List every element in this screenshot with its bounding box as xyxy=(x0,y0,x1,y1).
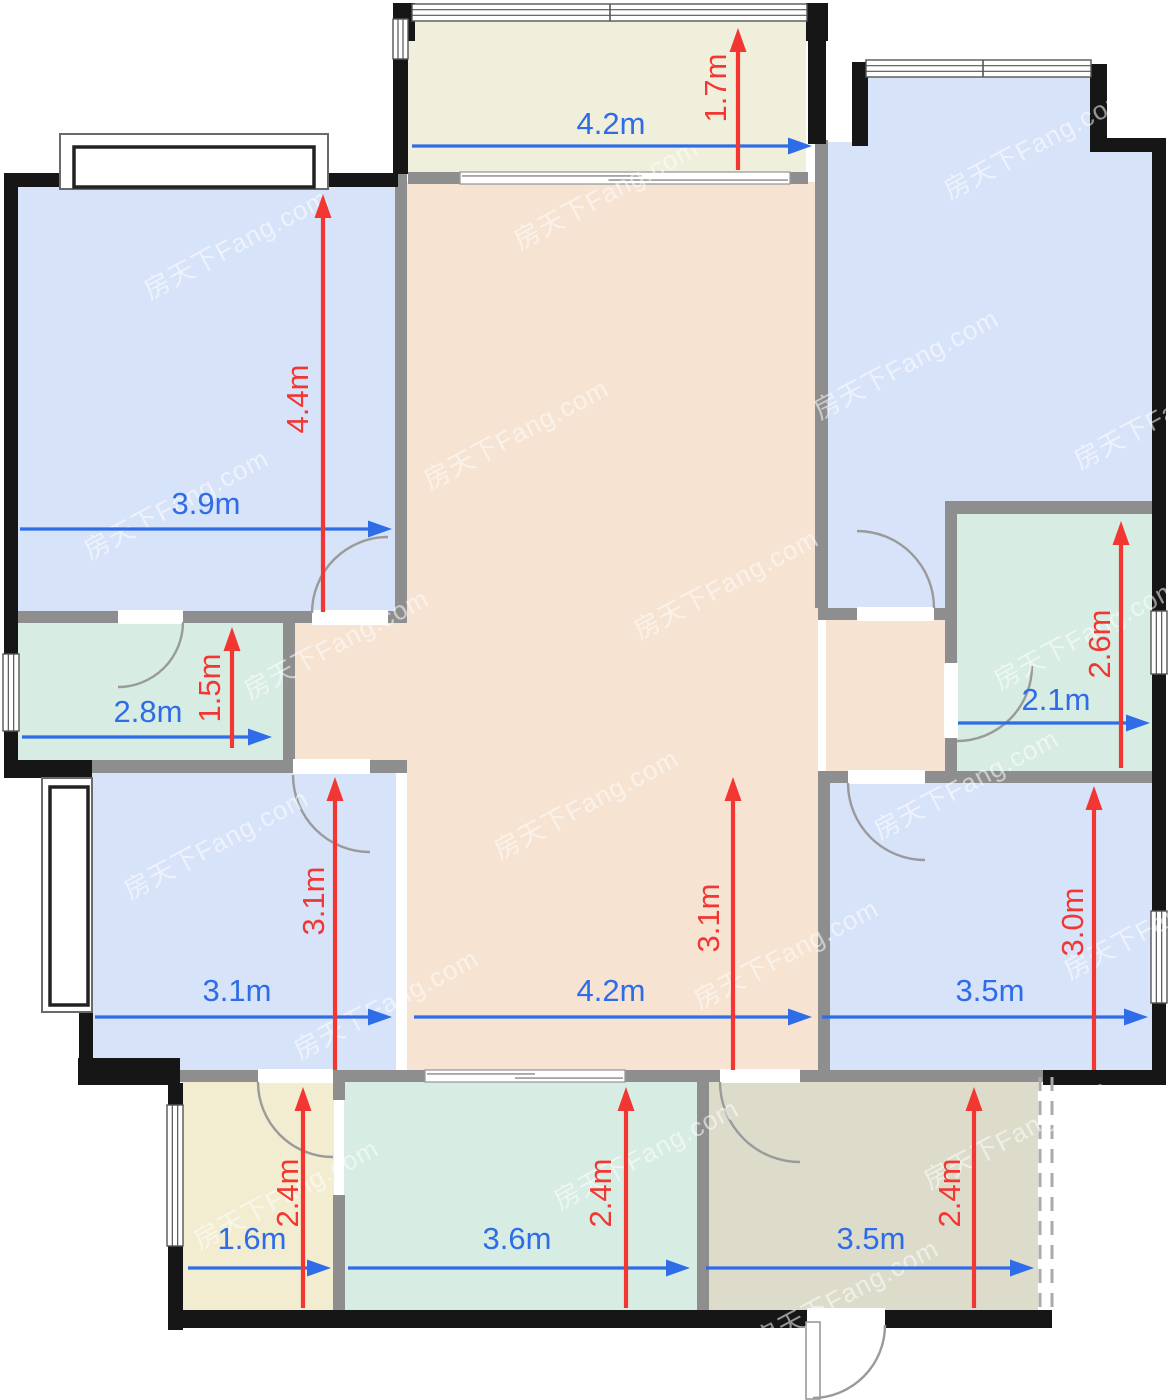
wall-interior xyxy=(408,172,460,184)
door-foyer-opening xyxy=(720,1069,800,1083)
window-balcony-left xyxy=(393,19,408,59)
wall-exterior xyxy=(78,1058,180,1085)
wall-interior xyxy=(790,172,808,184)
wall-interior xyxy=(800,1070,1043,1082)
dim-label: 2.4m xyxy=(583,1159,618,1228)
wall-exterior xyxy=(885,1310,1052,1328)
door-bath-2-opening xyxy=(258,1069,333,1083)
dim-label: 3.5m xyxy=(956,973,1025,1008)
dim-label: 1.7m xyxy=(698,54,733,123)
dim-label: 1.5m xyxy=(192,654,227,723)
door-bathroom-opening xyxy=(944,663,958,738)
door-bedroom-bottom-left-opening xyxy=(293,759,370,774)
dim-label: 3.6m xyxy=(483,1221,552,1256)
window-bathroom-right xyxy=(1151,611,1167,674)
floorplan: 房天下Fang.com房天下Fang.com房天下Fang.com房天下Fang… xyxy=(0,0,1173,1400)
dim-label: 2.8m xyxy=(114,694,183,729)
window-storage-left xyxy=(3,654,19,731)
dim-label: 2.4m xyxy=(932,1159,967,1228)
wall-exterior xyxy=(4,173,18,655)
dim-label: 3.1m xyxy=(203,973,272,1008)
room-kitchen xyxy=(344,1080,698,1312)
door-bedroom-top-right-opening xyxy=(857,607,934,621)
wall-exterior xyxy=(168,1083,183,1106)
wall-exterior xyxy=(808,3,826,144)
window-bath2-left xyxy=(167,1105,183,1246)
wall-interior xyxy=(333,1082,345,1100)
wall-interior xyxy=(625,1070,720,1082)
window-bedroom2-bay xyxy=(50,787,88,1005)
window-master-bay xyxy=(74,147,314,187)
window-bedroom-top-right xyxy=(866,60,1091,77)
door-bedroom-bottom-right-opening xyxy=(848,770,925,784)
dim-label: 4.2m xyxy=(577,106,646,141)
room-living-hall-right-arm xyxy=(826,617,946,773)
door-storage-opening xyxy=(118,610,183,624)
wall-interior xyxy=(395,173,407,623)
dim-label: 3.5m xyxy=(837,1221,906,1256)
dim-label: 3.0m xyxy=(1055,888,1090,957)
floorplan-svg: 房天下Fang.com房天下Fang.com房天下Fang.com房天下Fang… xyxy=(0,0,1173,1400)
room-living-hall-main xyxy=(407,182,818,1073)
dim-label: 4.2m xyxy=(577,973,646,1008)
dim-label: 4.4m xyxy=(280,365,315,434)
wall-interior xyxy=(92,760,293,773)
dim-label: 2.4m xyxy=(270,1159,305,1228)
door-main-entrance-leaf xyxy=(806,1322,820,1399)
sliding-door-kitchen xyxy=(425,1070,625,1082)
wall-interior xyxy=(945,501,957,663)
dim-label: 3.9m xyxy=(172,486,241,521)
dim-label: 3.1m xyxy=(296,867,331,936)
dim-label: 2.1m xyxy=(1022,682,1091,717)
wall-exterior xyxy=(1152,138,1166,611)
door-main-entrance-arc xyxy=(813,1325,885,1398)
wall-exterior xyxy=(393,58,408,174)
wall-interior xyxy=(945,501,1166,514)
wall-interior xyxy=(333,1195,345,1312)
wall-interior xyxy=(283,611,295,772)
dim-label: 2.6m xyxy=(1082,610,1117,679)
wall-interior xyxy=(370,760,407,773)
wall-exterior xyxy=(168,1310,807,1328)
wall-exterior xyxy=(1152,673,1166,913)
dim-label: 3.1m xyxy=(691,884,726,953)
room-bedroom-top-right-c xyxy=(827,505,947,615)
wall-interior xyxy=(818,608,857,620)
wall-exterior xyxy=(322,173,398,187)
room-balcony xyxy=(408,15,806,173)
wall-exterior xyxy=(4,173,67,187)
wall-interior xyxy=(18,611,118,623)
